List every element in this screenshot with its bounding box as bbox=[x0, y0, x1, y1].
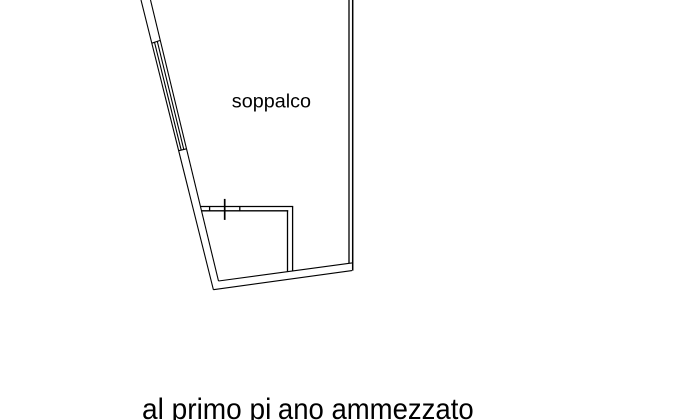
svg-text:al primo pi: al primo pi bbox=[142, 393, 271, 420]
svg-text:soppalco: soppalco bbox=[232, 92, 311, 113]
svg-text:ano ammezzato: ano ammezzato bbox=[278, 393, 474, 420]
